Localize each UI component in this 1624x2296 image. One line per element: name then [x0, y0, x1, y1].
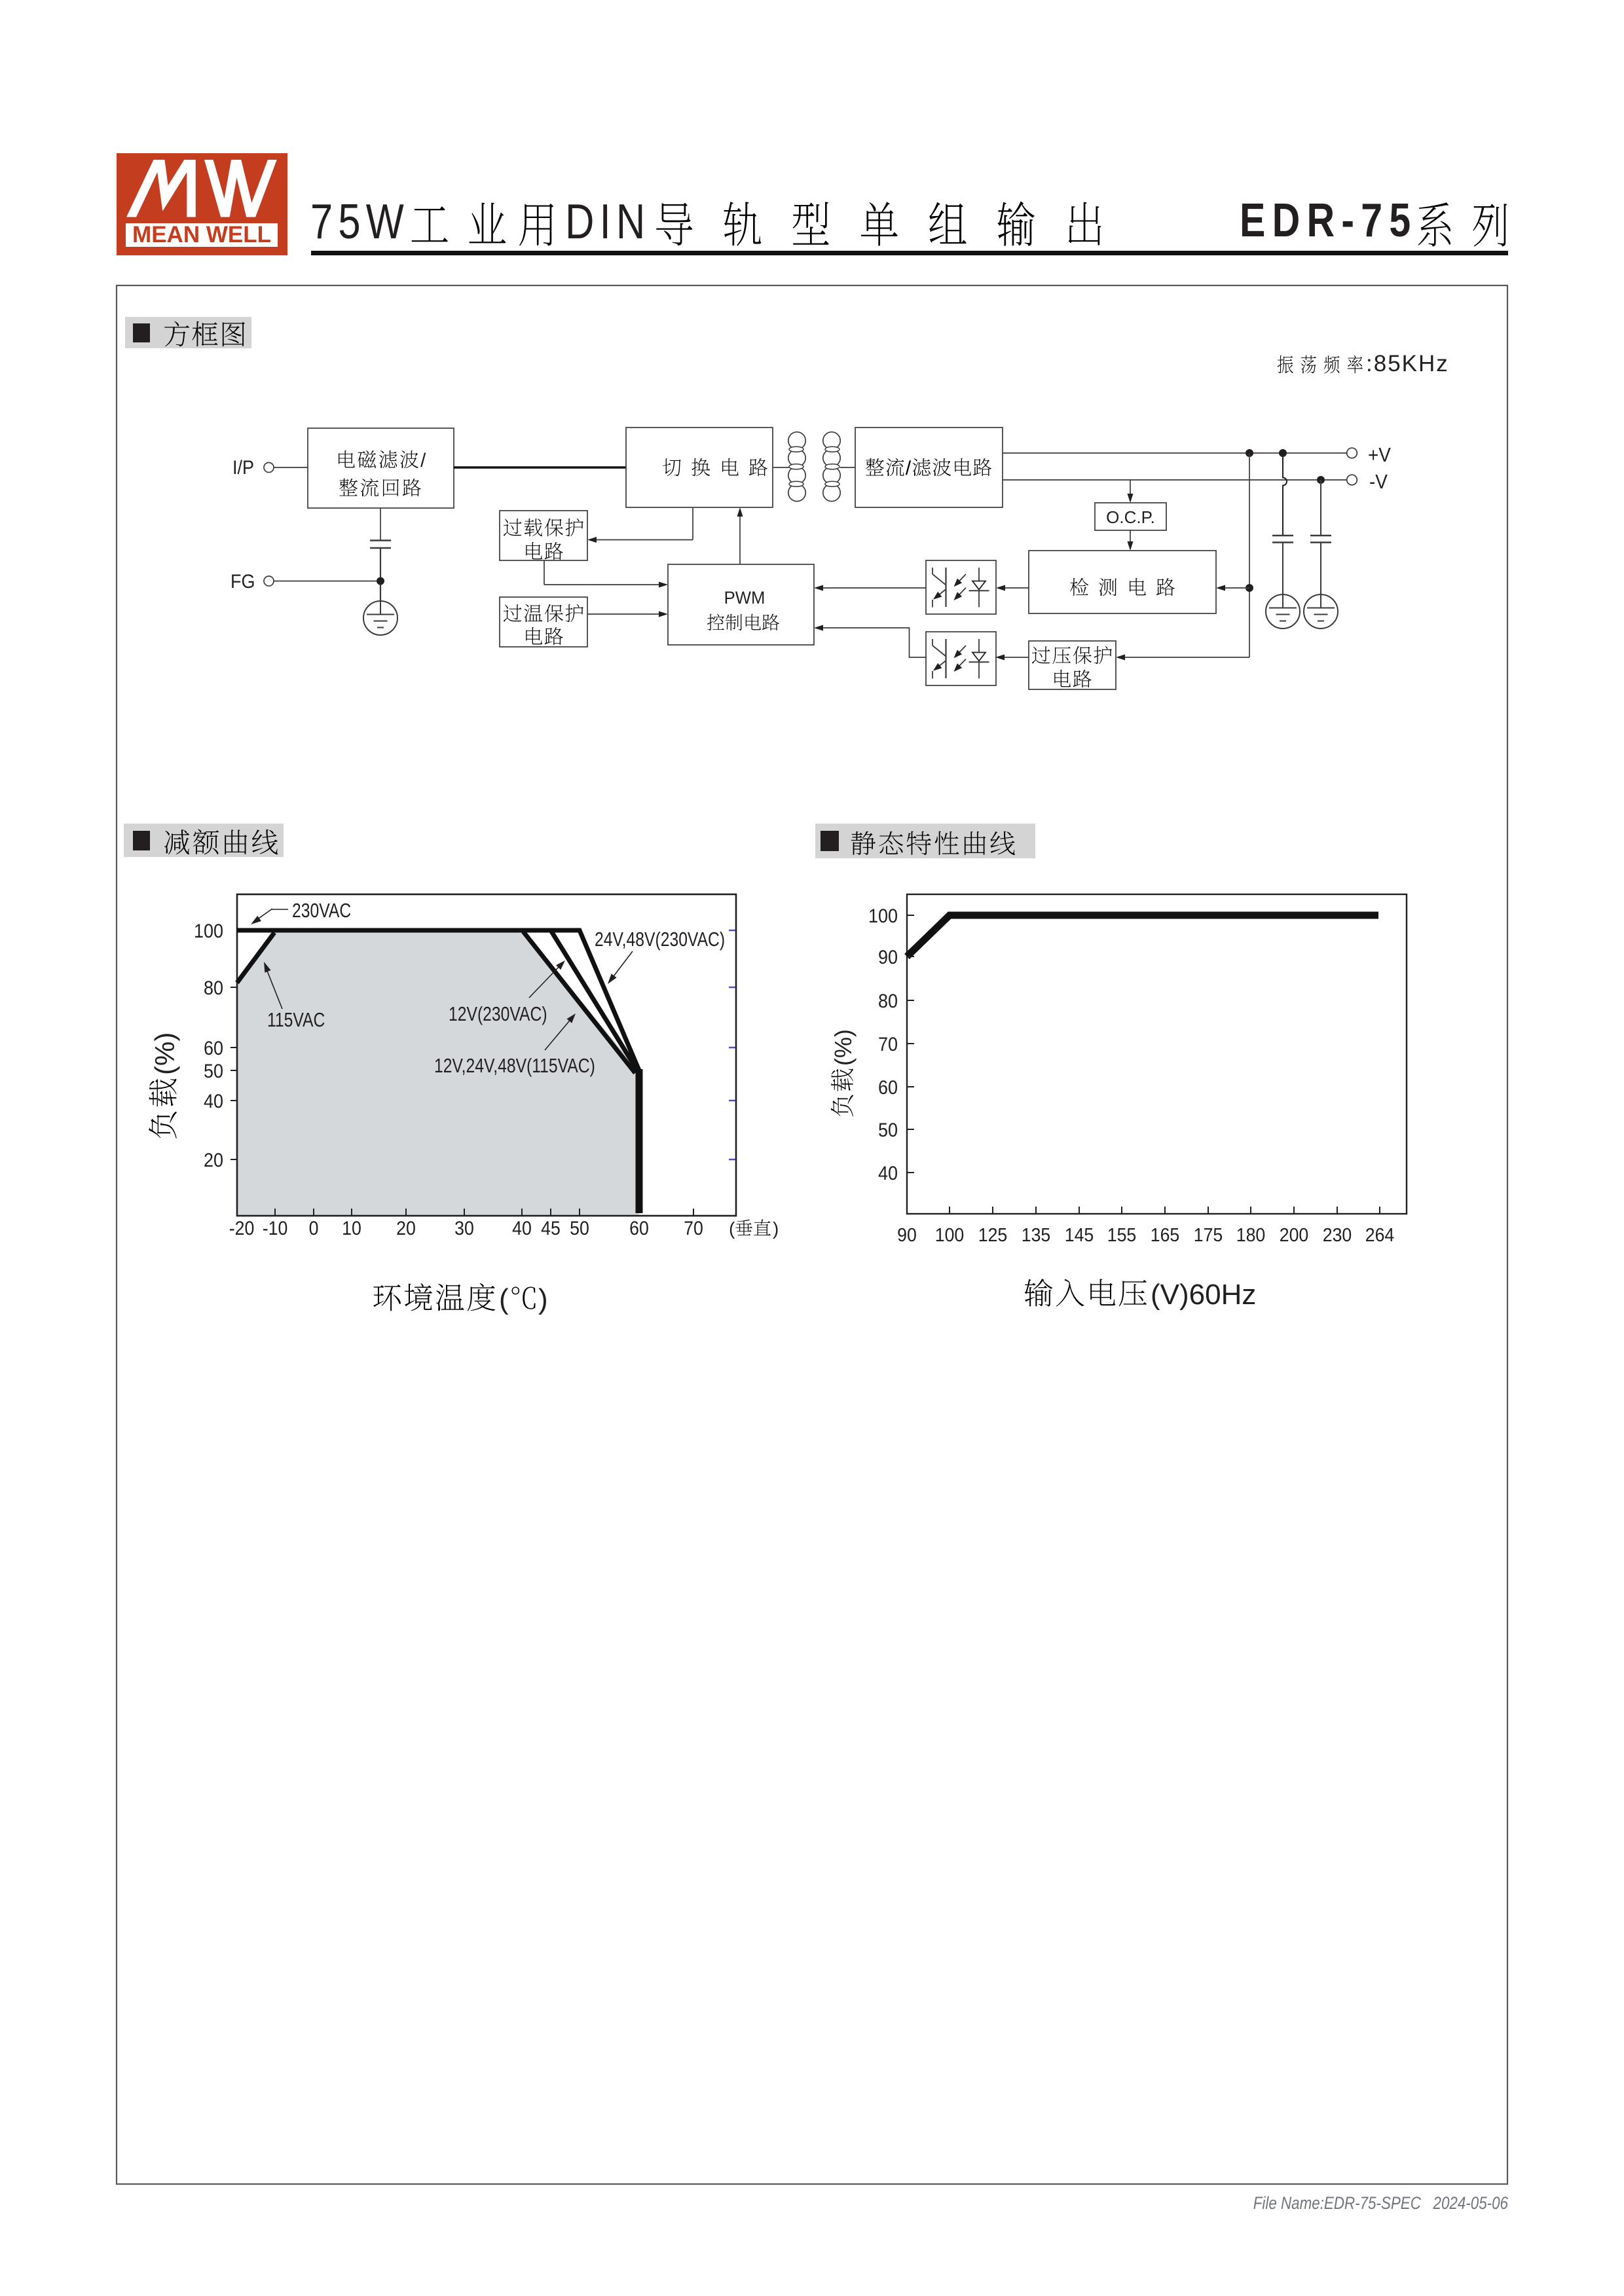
svg-text:100: 100 — [868, 905, 898, 928]
svg-text:(%): (%) — [149, 1032, 180, 1075]
svg-text:(V)60Hz: (V)60Hz — [1151, 1279, 1256, 1311]
svg-text:100: 100 — [194, 920, 223, 943]
svg-text:80: 80 — [204, 977, 223, 1000]
svg-text:+V: +V — [1368, 444, 1391, 467]
svg-text:10: 10 — [342, 1218, 361, 1240]
svg-text:200: 200 — [1280, 1224, 1309, 1245]
svg-text:155: 155 — [1107, 1224, 1137, 1245]
svg-text:45: 45 — [541, 1218, 561, 1240]
svg-text:DIN: DIN — [565, 194, 651, 249]
svg-text:I/P: I/P — [232, 457, 254, 479]
svg-text:90: 90 — [878, 947, 898, 969]
svg-text:(%): (%) — [830, 1029, 857, 1066]
svg-text::85KHz: :85KHz — [1366, 351, 1449, 376]
svg-text:FG: FG — [231, 571, 255, 593]
svg-text:175: 175 — [1194, 1224, 1223, 1245]
svg-text:230: 230 — [1323, 1224, 1352, 1245]
svg-text:90: 90 — [897, 1224, 917, 1245]
svg-text:60: 60 — [629, 1218, 649, 1240]
svg-text:70: 70 — [878, 1034, 898, 1056]
svg-text:12V(230VAC): 12V(230VAC) — [449, 1003, 547, 1025]
svg-text:MEAN WELL: MEAN WELL — [132, 222, 271, 247]
svg-text:30: 30 — [454, 1218, 474, 1240]
svg-text:264: 264 — [1365, 1224, 1395, 1245]
svg-text:135: 135 — [1022, 1224, 1051, 1245]
svg-text:EDR-75: EDR-75 — [1240, 193, 1417, 246]
svg-text:-V: -V — [1369, 471, 1388, 494]
svg-text:20: 20 — [204, 1150, 223, 1172]
svg-text:180: 180 — [1236, 1224, 1266, 1245]
svg-text:70: 70 — [684, 1218, 703, 1240]
svg-text:-10: -10 — [263, 1218, 288, 1240]
svg-text:O.C.P.: O.C.P. — [1106, 507, 1155, 527]
svg-text:230VAC: 230VAC — [292, 900, 351, 922]
svg-text:/: / — [420, 450, 426, 471]
svg-text:PWM: PWM — [724, 587, 766, 608]
svg-text:50: 50 — [878, 1120, 898, 1142]
svg-text:24V,48V(230VAC): 24V,48V(230VAC) — [595, 928, 725, 951]
svg-text:(: ( — [499, 1283, 509, 1315]
svg-text:40: 40 — [512, 1218, 532, 1240]
svg-text:100: 100 — [935, 1224, 965, 1245]
svg-text:50: 50 — [570, 1218, 589, 1240]
svg-text:40: 40 — [878, 1163, 898, 1185]
svg-text:125: 125 — [978, 1224, 1008, 1245]
svg-text:): ) — [538, 1283, 548, 1315]
svg-text:): ) — [773, 1218, 779, 1239]
svg-text:-20: -20 — [229, 1218, 255, 1240]
svg-text:0: 0 — [309, 1218, 319, 1240]
svg-text:115VAC: 115VAC — [267, 1009, 325, 1031]
svg-text:80: 80 — [878, 991, 898, 1013]
svg-text:(: ( — [729, 1218, 735, 1239]
svg-text:60: 60 — [878, 1077, 898, 1099]
svg-text:165: 165 — [1151, 1224, 1180, 1245]
svg-text:40: 40 — [204, 1091, 223, 1113]
svg-text:12V,24V,48V(115VAC): 12V,24V,48V(115VAC) — [434, 1055, 595, 1077]
svg-text:50: 50 — [204, 1061, 223, 1083]
svg-text:File Name:EDR-75-SPEC 2024-0: File Name:EDR-75-SPEC 2024-05-06 — [1253, 2194, 1509, 2213]
svg-text:75W: 75W — [310, 194, 409, 249]
svg-text:60: 60 — [204, 1038, 223, 1060]
svg-text:145: 145 — [1065, 1224, 1094, 1245]
svg-text:20: 20 — [396, 1218, 416, 1240]
